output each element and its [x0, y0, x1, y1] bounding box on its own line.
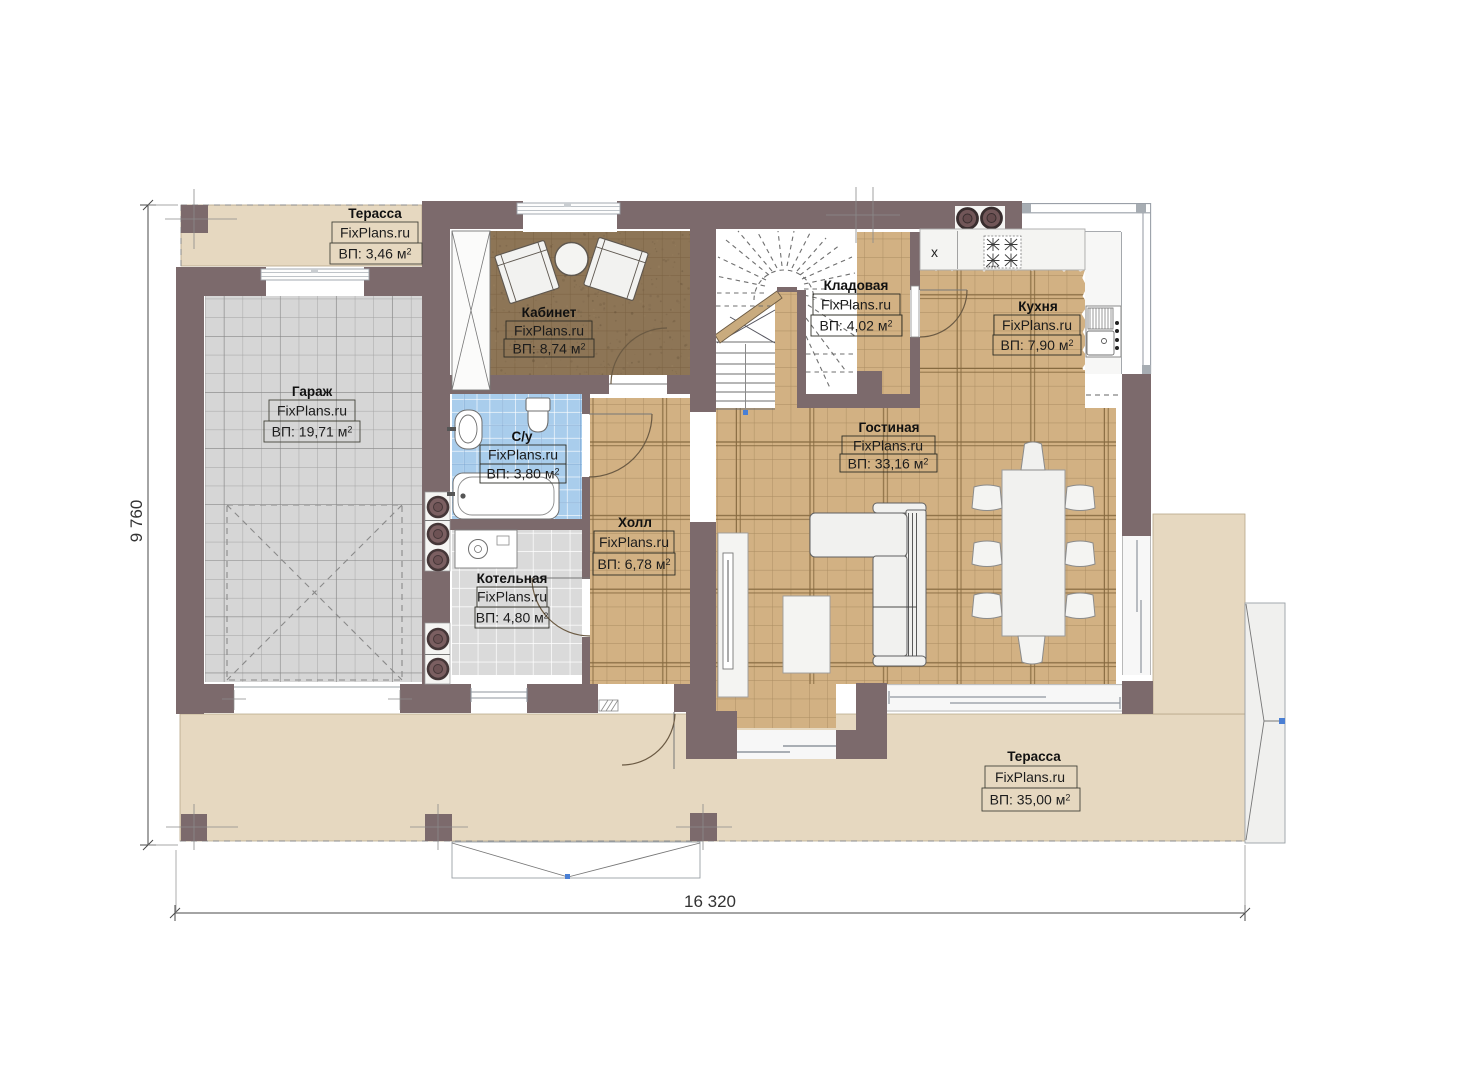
- svg-text:Терасса: Терасса: [348, 206, 402, 221]
- svg-text:Гостиная: Гостиная: [858, 420, 919, 435]
- svg-text:FixPlans.ru: FixPlans.ru: [514, 323, 584, 339]
- svg-text:ВП: 19,71 м2: ВП: 19,71 м2: [272, 424, 353, 440]
- svg-text:ВП: 4,02 м2: ВП: 4,02 м2: [820, 318, 893, 334]
- svg-text:ВП: 3,46 м2: ВП: 3,46 м2: [339, 246, 412, 262]
- svg-text:ВП: 35,00 м2: ВП: 35,00 м2: [990, 792, 1071, 808]
- svg-text:9 760: 9 760: [127, 500, 146, 543]
- svg-text:ВП: 8,74 м2: ВП: 8,74 м2: [513, 341, 586, 357]
- svg-text:FixPlans.ru: FixPlans.ru: [821, 297, 891, 313]
- svg-text:ВП: 7,90 м2: ВП: 7,90 м2: [1001, 337, 1074, 353]
- svg-text:Кухня: Кухня: [1018, 299, 1057, 314]
- svg-text:Кабинет: Кабинет: [522, 305, 577, 320]
- svg-text:FixPlans.ru: FixPlans.ru: [488, 447, 558, 463]
- svg-text:FixPlans.ru: FixPlans.ru: [277, 403, 347, 419]
- svg-text:FixPlans.ru: FixPlans.ru: [1002, 317, 1072, 333]
- svg-text:ВП: 4,80 м2: ВП: 4,80 м2: [476, 610, 549, 626]
- svg-text:FixPlans.ru: FixPlans.ru: [853, 438, 923, 454]
- svg-text:x: x: [931, 244, 938, 260]
- svg-text:ВП: 3,80 м2: ВП: 3,80 м2: [487, 466, 560, 482]
- svg-text:FixPlans.ru: FixPlans.ru: [599, 534, 669, 550]
- svg-text:Гараж: Гараж: [292, 384, 333, 399]
- svg-text:FixPlans.ru: FixPlans.ru: [477, 589, 547, 605]
- svg-text:ВП: 33,16 м2: ВП: 33,16 м2: [848, 456, 929, 472]
- svg-text:Кладовая: Кладовая: [824, 278, 889, 293]
- svg-text:Холл: Холл: [618, 515, 652, 530]
- svg-text:Котельная: Котельная: [477, 571, 548, 586]
- svg-text:Терасса: Терасса: [1007, 749, 1061, 764]
- svg-text:ВП: 6,78 м2: ВП: 6,78 м2: [598, 556, 671, 572]
- svg-text:С/у: С/у: [511, 429, 533, 444]
- svg-text:16 320: 16 320: [684, 892, 736, 911]
- svg-text:FixPlans.ru: FixPlans.ru: [340, 225, 410, 241]
- svg-text:FixPlans.ru: FixPlans.ru: [995, 769, 1065, 785]
